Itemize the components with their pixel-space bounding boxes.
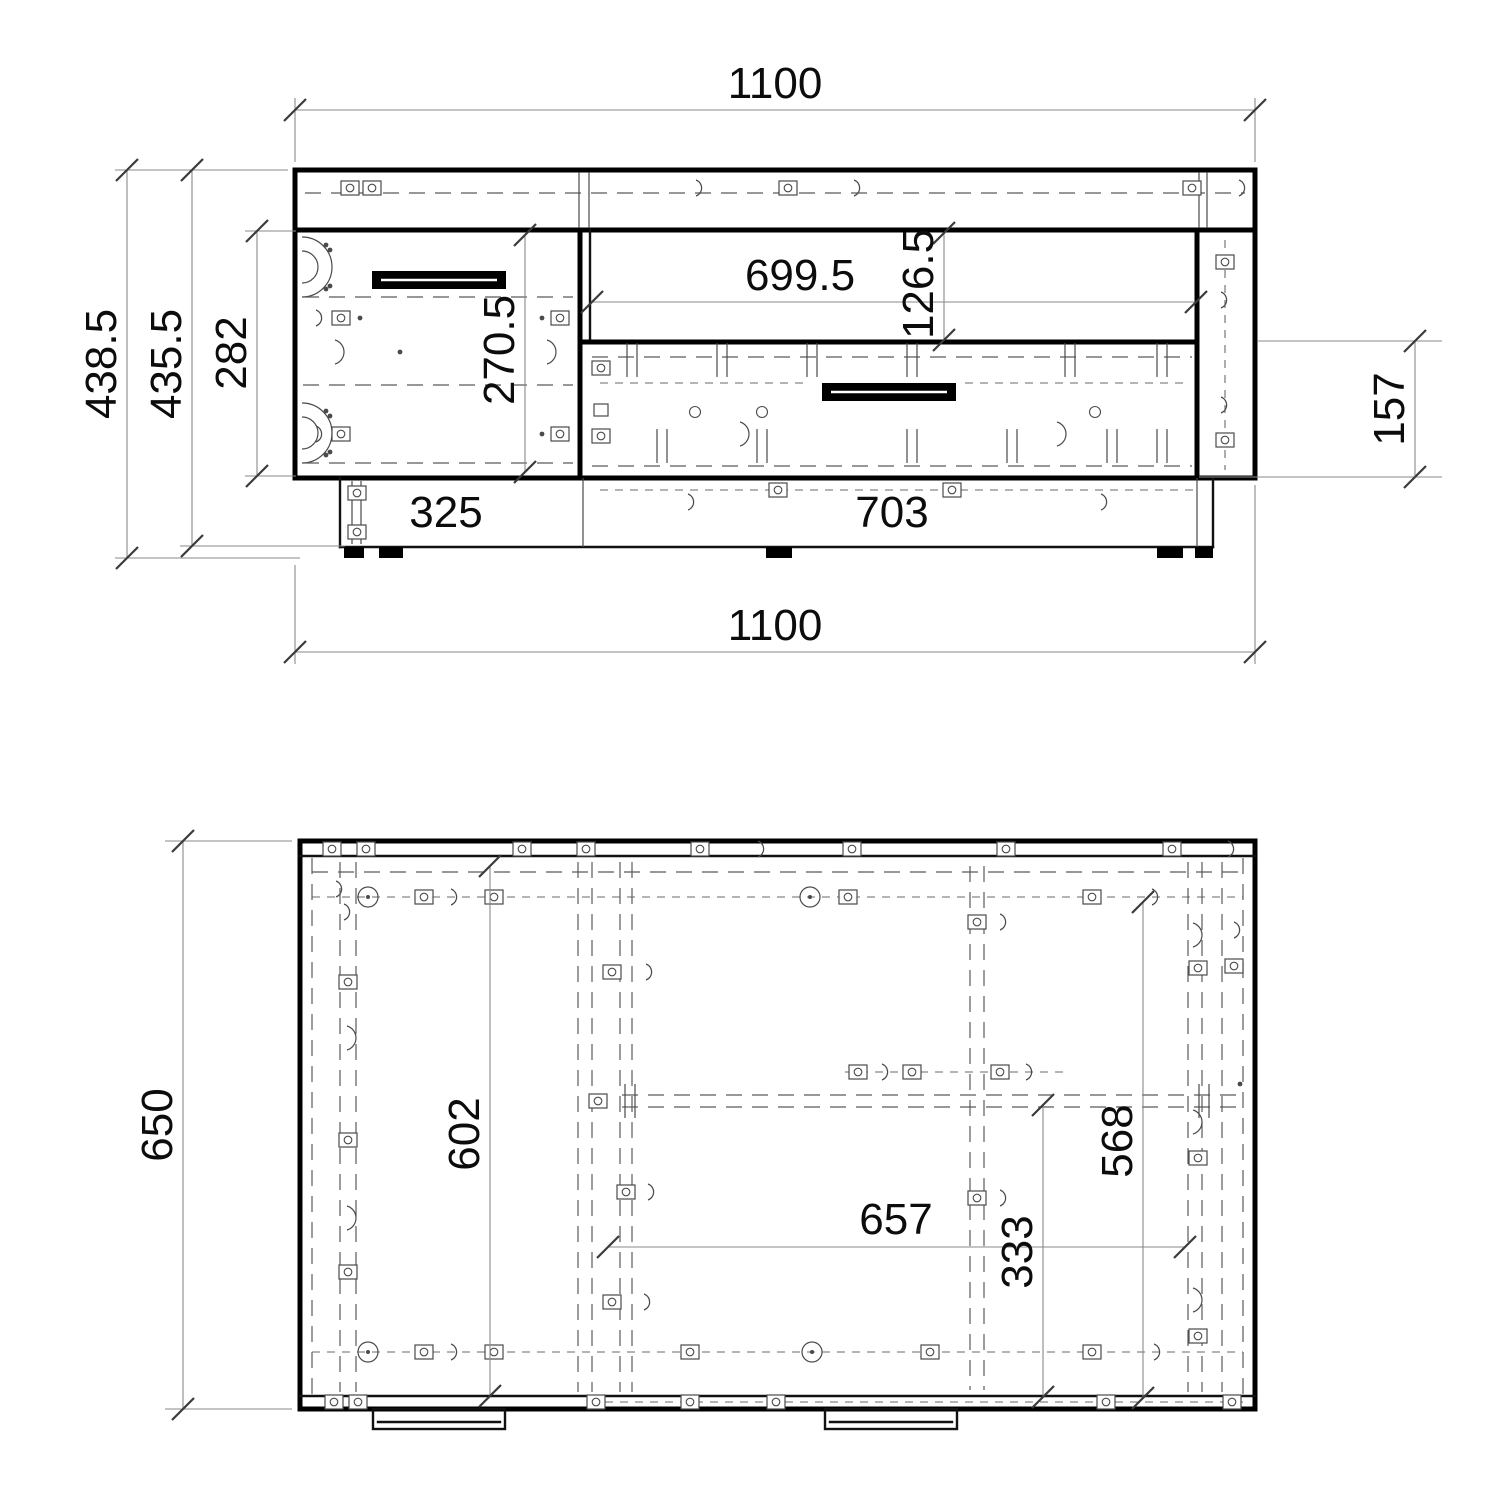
- front-carcass: [295, 170, 1255, 478]
- plan-view: 650 602 568 657 333: [133, 830, 1255, 1429]
- dim-plan-depth-drawer: 568: [1093, 891, 1154, 1409]
- dim-plan-depth-drawer-inner: 333: [993, 1094, 1054, 1408]
- dim-front-drawer-height: 157: [1199, 330, 1442, 488]
- drawing-canvas: 1100 1100 438.5 435.5 282: [0, 0, 1500, 1500]
- dim-label-width-interior: 657: [859, 1195, 932, 1244]
- drawer-handle-top-view: [825, 1409, 957, 1429]
- hinge-icon: [302, 403, 332, 463]
- plan-divider-hidden: [578, 862, 654, 1392]
- foot: [344, 547, 364, 558]
- front-right-panel-fittings: [1216, 240, 1234, 470]
- front-drawer: [592, 343, 1192, 466]
- dim-label-width-top: 1100: [728, 59, 823, 108]
- dim-plan-depth-interior: 602: [440, 855, 501, 1407]
- dim-front-height-door: 270.5: [475, 224, 536, 483]
- dim-front-width-top: 1100: [284, 59, 1266, 162]
- dim-label-depth-drawer-inner: 333: [993, 1215, 1042, 1288]
- front-top-board-fittings: [305, 172, 1245, 228]
- front-view: 1100 1100 438.5 435.5 282: [77, 59, 1442, 664]
- dim-label-height-overall: 438.5: [77, 309, 126, 419]
- dim-plan-width-interior: 657: [597, 1195, 1196, 1258]
- plan-handles: [373, 1409, 957, 1429]
- foot: [1157, 547, 1183, 558]
- foot: [379, 547, 403, 558]
- dim-label-plinth-right: 703: [855, 488, 928, 537]
- dim-label-depth-interior: 602: [440, 1097, 489, 1170]
- foot: [766, 547, 792, 558]
- front-door: [302, 237, 573, 463]
- door-handle-top-view: [373, 1409, 505, 1429]
- dim-label-shelf-height: 126.5: [894, 229, 943, 339]
- dim-label-height-opening: 282: [207, 316, 256, 389]
- dim-label-depth-overall: 650: [133, 1088, 182, 1161]
- plan-runner-hidden: [968, 866, 1006, 1390]
- plan-back-hidden-rows: [312, 872, 1243, 907]
- dim-plan-depth-overall: 650: [133, 830, 292, 1420]
- dim-label-drawer-height: 157: [1365, 372, 1414, 445]
- dim-label-depth-drawer: 568: [1093, 1104, 1142, 1177]
- dim-label-shelf-width: 699.5: [745, 251, 855, 300]
- plan-left-panel-hidden: [312, 858, 357, 1394]
- dim-label-height-door: 270.5: [475, 295, 524, 405]
- plan-right-panel-hidden: [1188, 858, 1243, 1394]
- hinge-icon: [302, 237, 332, 297]
- foot: [1195, 547, 1213, 558]
- dim-label-width-bottom: 1100: [728, 601, 823, 650]
- technical-drawing-page: 1100 1100 438.5 435.5 282: [0, 0, 1500, 1500]
- plan-drawer-hidden: [589, 1064, 1240, 1118]
- dim-label-plinth-left: 325: [409, 488, 482, 537]
- plan-front-hidden-rows: [312, 1342, 1250, 1409]
- dim-front-shelf-height: 126.5: [894, 222, 955, 351]
- dim-label-height-body: 435.5: [142, 309, 191, 419]
- dim-front-height-opening: 282: [207, 220, 296, 487]
